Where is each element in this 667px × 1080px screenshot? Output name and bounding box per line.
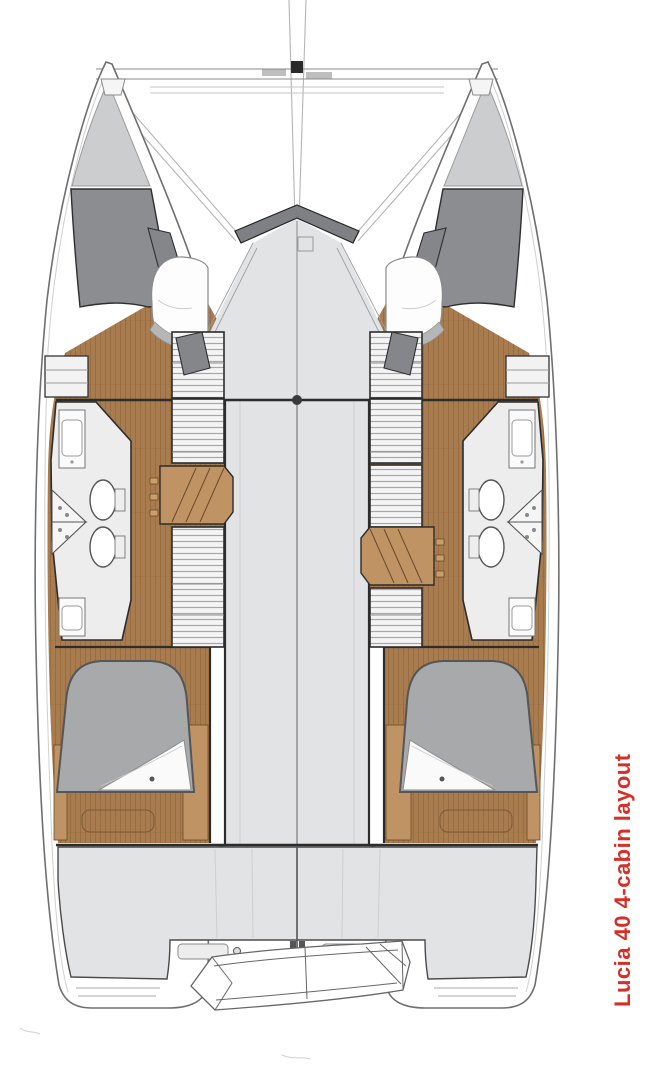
foredeck [207, 205, 387, 400]
bowsprit-fitting [291, 61, 303, 73]
catamaran-floor-plan [0, 0, 667, 1080]
mast-post [292, 395, 302, 405]
floor-plan-stage: Lucia 40 4-cabin layout [0, 0, 667, 1080]
water-mark [20, 1028, 40, 1034]
water-mark [282, 1055, 310, 1059]
port-companionway-steps [150, 466, 233, 524]
plan-title: Lucia 40 4-cabin layout [610, 753, 636, 1007]
starboard-lockers [370, 332, 422, 647]
starboard-companionway-steps [361, 527, 444, 585]
